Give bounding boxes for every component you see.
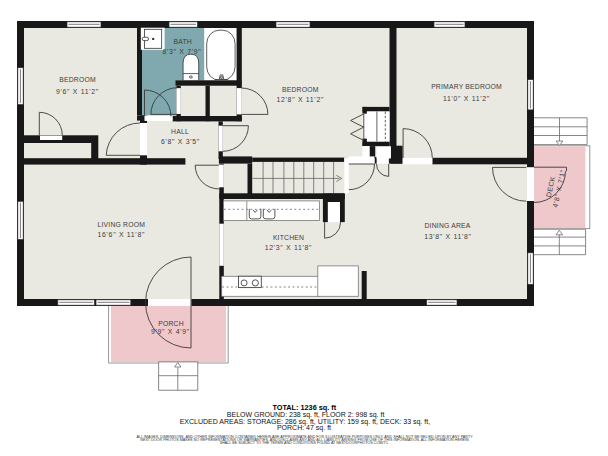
svg-text:PORCH: PORCH — [158, 320, 184, 327]
svg-text:13'8" X 11'8": 13'8" X 11'8" — [424, 233, 472, 240]
svg-text:PORCH: 47 sq. ft: PORCH: 47 sq. ft — [277, 424, 331, 432]
svg-text:9'6" X 11'2": 9'6" X 11'2" — [56, 88, 99, 95]
svg-text:KITCHEN: KITCHEN — [273, 234, 304, 241]
svg-text:BEDROOM: BEDROOM — [59, 76, 96, 83]
svg-text:12'8" X 11'2": 12'8" X 11'2" — [277, 96, 325, 103]
svg-text:DINING AREA: DINING AREA — [424, 222, 470, 229]
svg-text:LIVING ROOM: LIVING ROOM — [98, 221, 146, 228]
svg-text:6'8" X 3'5": 6'8" X 3'5" — [161, 138, 200, 145]
svg-text:11'0" X 11'2": 11'0" X 11'2" — [443, 95, 490, 102]
svg-text:SHALL BE SUBJECT TO THE TERMS: SHALL BE SUBJECT TO THE TERMS AND CONDIT… — [220, 441, 390, 445]
svg-text:9'9" X 4'9": 9'9" X 4'9" — [151, 328, 190, 335]
svg-text:PRIMARY BEDROOM: PRIMARY BEDROOM — [431, 83, 502, 90]
svg-text:HALL: HALL — [171, 128, 189, 135]
svg-text:BEDROOM: BEDROOM — [282, 86, 319, 93]
svg-text:8'3" X 7'9": 8'3" X 7'9" — [163, 48, 202, 55]
svg-text:BATH: BATH — [173, 38, 191, 45]
svg-text:12'3" X 11'8": 12'3" X 11'8" — [265, 244, 313, 251]
svg-text:16'6" X 11'8": 16'6" X 11'8" — [98, 231, 146, 238]
